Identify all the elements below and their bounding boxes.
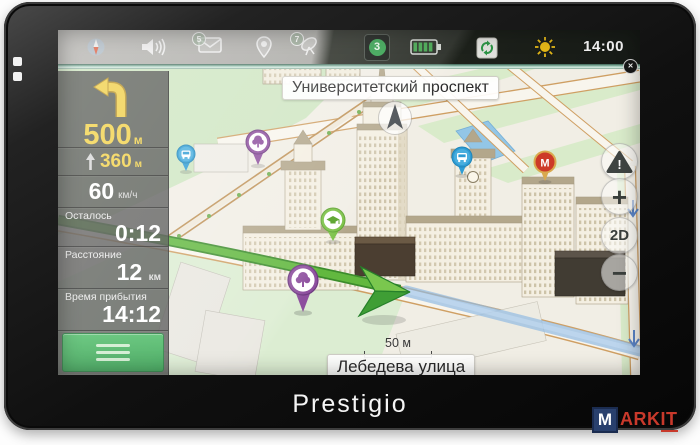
- svg-text:!: !: [617, 157, 621, 172]
- zoom-out-button[interactable]: −: [601, 254, 638, 291]
- speaker-dot: [13, 57, 22, 66]
- maneuver-panel[interactable]: 500м: [58, 71, 168, 148]
- progress-close-icon[interactable]: ✕: [623, 59, 638, 74]
- warning-button[interactable]: !: [601, 143, 638, 180]
- distance-value: 12: [117, 259, 143, 285]
- arrival-panel[interactable]: Время прибытия 14:12: [58, 289, 168, 331]
- arrival-value: 14:12: [65, 303, 161, 325]
- next-maneuver-panel[interactable]: 360 м: [58, 148, 168, 176]
- messages-count-badge: 5: [192, 32, 206, 46]
- maneuver-unit: м: [134, 133, 143, 147]
- day-night-icon[interactable]: [534, 36, 556, 58]
- status-bar: 5 7 3: [58, 30, 640, 64]
- speed-panel[interactable]: 60 км/ч: [58, 176, 168, 208]
- route-progress-line: [58, 64, 640, 69]
- remaining-value: 0:12: [65, 222, 161, 244]
- distance-unit: км: [149, 272, 161, 283]
- next-distance-unit: м: [135, 159, 142, 170]
- next-distance: 360: [100, 151, 132, 173]
- maneuver-distance: 500: [83, 119, 131, 151]
- street-label-bottom: Лебедева улица: [327, 354, 475, 375]
- speed-value: 60: [89, 178, 115, 205]
- time-remaining-panel[interactable]: Осталось 0:12: [58, 208, 168, 247]
- metro-m-label: M: [540, 158, 549, 170]
- menu-button[interactable]: [62, 333, 164, 372]
- straight-arrow-icon: [84, 152, 97, 171]
- watermark-m: M: [592, 407, 618, 433]
- view-mode-button[interactable]: 2D: [601, 217, 638, 254]
- compass-status-icon[interactable]: [86, 36, 106, 58]
- traffic-level: 3: [369, 39, 386, 56]
- compass-button[interactable]: [379, 102, 412, 135]
- sync-icon[interactable]: [476, 35, 498, 59]
- scale-label: 50 м: [364, 336, 432, 350]
- clock[interactable]: 14:00: [583, 38, 624, 55]
- battery-icon[interactable]: [410, 39, 442, 55]
- speaker-dot: [13, 72, 22, 81]
- messages-icon[interactable]: 5: [198, 36, 222, 54]
- warning-triangle-icon: !: [606, 150, 633, 174]
- volume-icon[interactable]: [140, 36, 166, 58]
- screen: M Университетский проспект Лебедева улиц…: [58, 30, 640, 375]
- speed-unit: км/ч: [118, 190, 137, 201]
- traffic-status-icon[interactable]: 3: [364, 34, 390, 61]
- turn-left-arrow-icon: [90, 73, 136, 117]
- device-frame: M Университетский проспект Лебедева улиц…: [4, 2, 696, 430]
- watermark: M ARK IT: [592, 407, 678, 433]
- satellites-icon[interactable]: 7: [296, 36, 322, 56]
- satellites-count-badge: 7: [290, 32, 304, 46]
- watermark-it: IT: [661, 409, 678, 432]
- location-icon[interactable]: [256, 36, 272, 58]
- menu-button-area: [58, 331, 168, 374]
- watermark-ark: ARK: [620, 409, 661, 430]
- photo-stage: M Университетский проспект Лебедева улиц…: [0, 0, 700, 445]
- distance-panel[interactable]: Расстояние 12 км: [58, 247, 168, 289]
- nav-info-sidebar: 500м 360 м 60 км/ч Осталось 0:12: [58, 71, 169, 375]
- zoom-in-button[interactable]: +: [601, 178, 638, 215]
- street-label-top: Университетский проспект: [282, 76, 499, 100]
- hamburger-icon: [96, 344, 130, 348]
